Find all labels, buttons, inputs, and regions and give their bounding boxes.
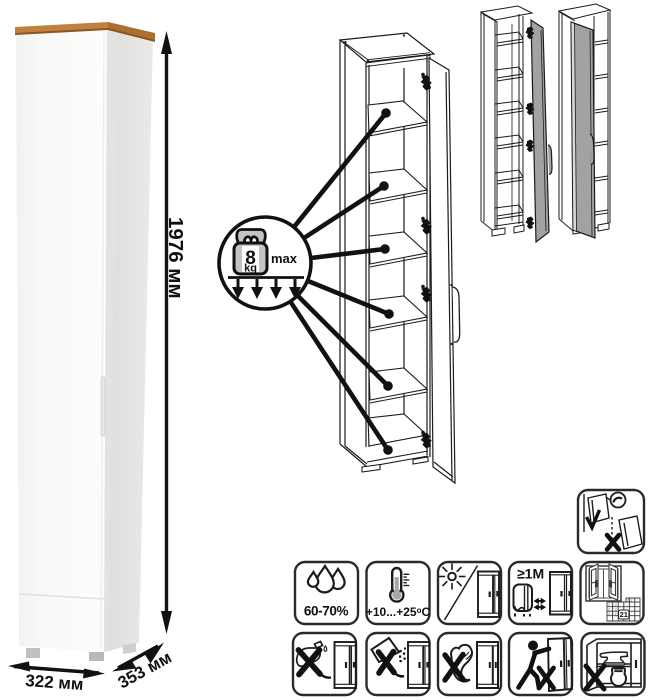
svg-text:2 2 2: 2 2 2: [608, 611, 618, 616]
svg-text:21: 21: [620, 610, 628, 619]
svg-text:1976 мм: 1976 мм: [164, 217, 187, 299]
svg-text:+10...+25оС: +10...+25оС: [366, 605, 431, 619]
svg-text:≥1М: ≥1М: [517, 566, 544, 582]
svg-text:max: max: [271, 251, 298, 266]
svg-text:kg: kg: [244, 263, 257, 275]
svg-text:322 мм: 322 мм: [25, 671, 84, 694]
svg-text:60-70%: 60-70%: [304, 604, 349, 619]
svg-text:2 2: 2 2: [627, 598, 633, 603]
